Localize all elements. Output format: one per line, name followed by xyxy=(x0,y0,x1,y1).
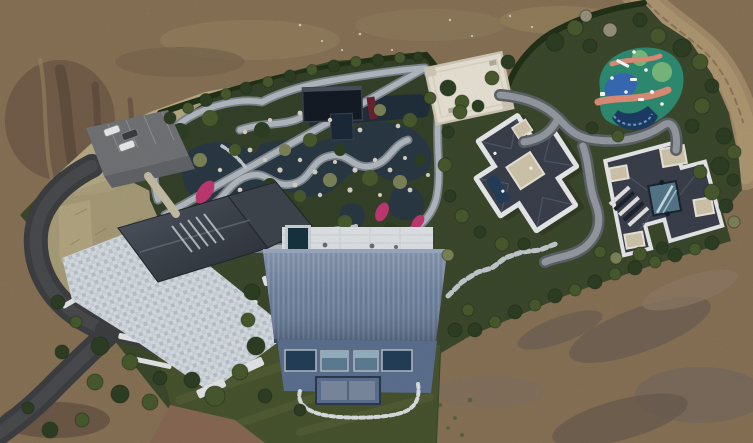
aerial-photo-canvas xyxy=(0,0,753,443)
aerial-photo xyxy=(0,0,753,443)
photo-grain xyxy=(0,0,753,443)
